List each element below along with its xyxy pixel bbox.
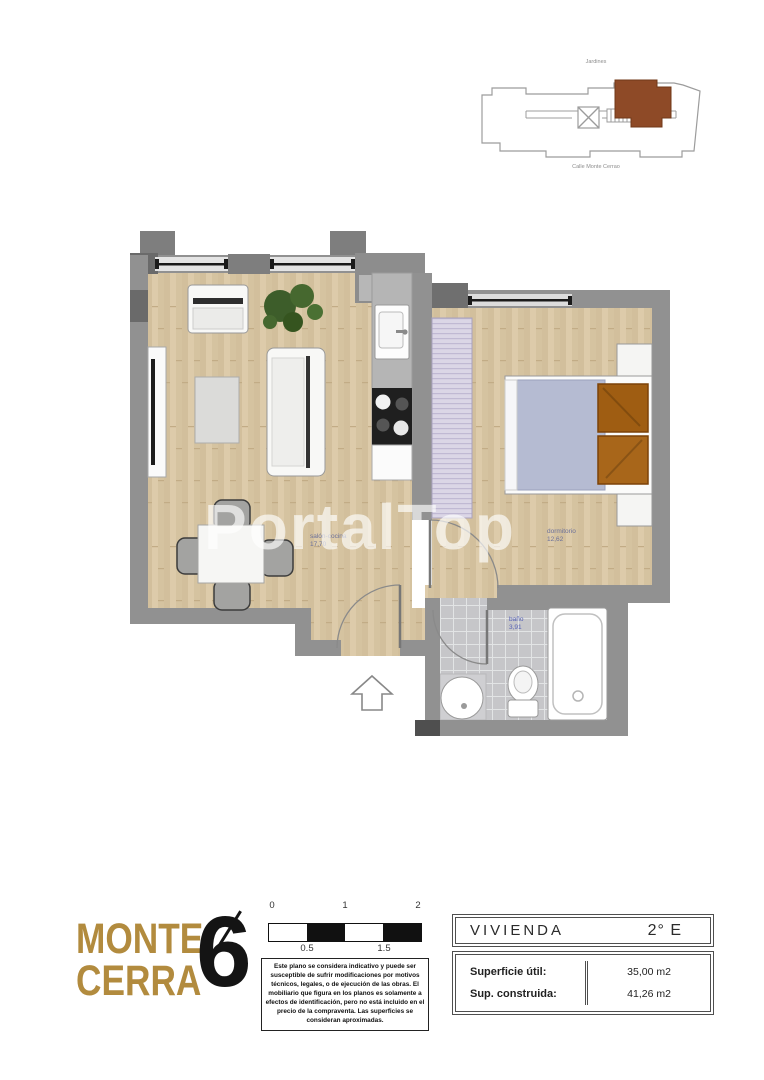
info-table-body: Superficie útil: 35,00 m2 Sup. construid… [452,951,714,1015]
room-name: baño [509,616,523,624]
site-plan: Jardines Calle Monte Cerrao [468,50,708,172]
unit-label: 2° E [648,922,682,940]
floor-plan [128,228,673,740]
logo-word-monte: MONTE [76,918,203,961]
scale-tick: 0 [269,900,274,911]
floorplan-page: Jardines Calle Monte Cerrao [0,0,764,1080]
disclaimer-box: Este plano se considera indicativo y pue… [261,958,429,1031]
tv [151,359,155,465]
room-label-bano: baño 3,91 [509,616,523,632]
nightstand [617,492,652,526]
room-label-dormitorio: dormitorio 12,62 [547,528,576,544]
site-plan-bottom-label: Calle Monte Cerrao [572,164,620,170]
scale-tick: 2 [415,900,420,911]
coffee-table [195,377,239,443]
info-table-header: VIVIENDA 2° E [452,914,714,947]
room-area: 3,91 [509,624,523,632]
scale-bar: 0 1 2 0.5 1.5 [264,900,426,952]
sup-construida-value: 41,26 m2 [588,983,710,1005]
sup-construida-label: Sup. construida: [456,983,588,1005]
scale-tick: 1 [342,900,347,911]
room-area: 12,62 [547,536,576,544]
info-table: VIVIENDA 2° E Superficie útil: 35,00 m2 … [452,914,714,1015]
logo-word-cerra: CERRA [76,960,201,1003]
site-plan-top-label: Jardines [586,59,607,65]
superficie-util-value: 35,00 m2 [588,961,710,983]
washbasin [441,677,483,719]
scale-tick: 0.5 [300,943,313,954]
wardrobe [432,318,472,518]
room-name: dormitorio [547,528,576,536]
tv-unit [148,347,166,477]
site-plan-elevator [578,107,599,128]
logo: MONTE CERRA 6 [76,914,261,1016]
superficie-util-label: Superficie útil: [456,961,588,983]
bathtub [548,608,607,720]
bed-duvet [517,380,605,490]
kitchen-appliance [372,445,412,480]
kitchen [372,273,412,480]
scale-tick: 1.5 [377,943,390,954]
entrance-arrow-icon [352,676,392,710]
watermark: PortalTop [204,490,516,564]
scale-bar-segments [268,923,422,942]
vivienda-label: VIVIENDA [470,922,564,939]
nightstand [617,344,652,378]
logo-number: 6 [196,902,252,1002]
